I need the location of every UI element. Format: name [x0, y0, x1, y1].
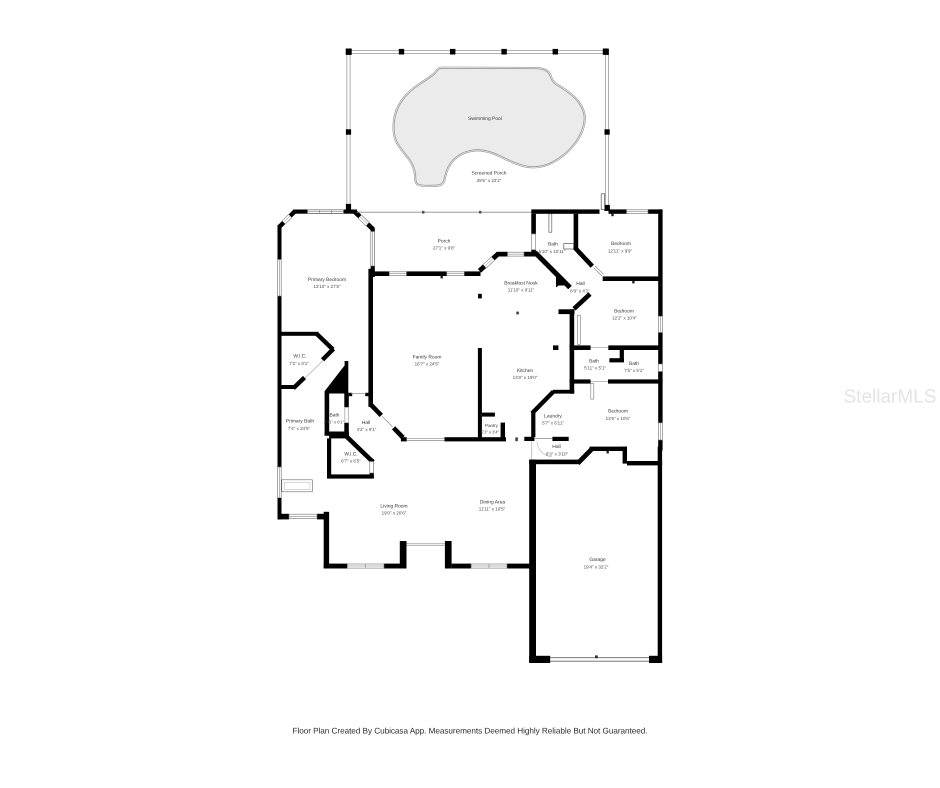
svg-text:Living Room: Living Room: [380, 504, 407, 510]
svg-text:12'11" x 9'9": 12'11" x 9'9": [608, 249, 633, 254]
svg-text:4'2" x 9'1": 4'2" x 9'1": [357, 427, 377, 432]
svg-text:Bedroom: Bedroom: [611, 241, 631, 247]
svg-text:Laundry: Laundry: [544, 414, 562, 420]
svg-text:Dining Area: Dining Area: [480, 500, 506, 506]
svg-text:Bath: Bath: [329, 413, 339, 419]
svg-text:Porch: Porch: [438, 239, 451, 245]
svg-text:Pantry: Pantry: [485, 423, 498, 428]
svg-text:Primary Bath: Primary Bath: [286, 419, 315, 425]
svg-text:12'2" x 10'4": 12'2" x 10'4": [612, 316, 637, 321]
svg-text:Screened Porch: Screened Porch: [471, 171, 506, 177]
svg-text:Garage: Garage: [589, 557, 606, 563]
svg-text:13'6" x 10'6": 13'6" x 10'6": [606, 416, 631, 421]
svg-text:Bedroom: Bedroom: [614, 309, 634, 315]
svg-text:Swimming Pool: Swimming Pool: [468, 116, 502, 122]
svg-text:8'3" x 3'10": 8'3" x 3'10": [546, 452, 569, 457]
svg-text:Bath: Bath: [629, 361, 639, 367]
svg-text:Bedroom: Bedroom: [608, 409, 628, 415]
svg-text:Kitchen: Kitchen: [517, 368, 534, 374]
svg-text:16'7" x 24'5": 16'7" x 24'5": [415, 362, 440, 367]
svg-text:W.I.C.: W.I.C.: [293, 354, 306, 360]
svg-text:5'11" x 5'1": 5'11" x 5'1": [584, 366, 606, 371]
svg-text:Breakfast Nook: Breakfast Nook: [504, 281, 538, 287]
svg-text:19'4" x 32'2": 19'4" x 32'2": [584, 565, 609, 570]
svg-text:39'6" x 23'2": 39'6" x 23'2": [477, 178, 502, 183]
svg-text:Hall: Hall: [362, 420, 370, 426]
svg-text:6'7" x 6'5": 6'7" x 6'5": [341, 459, 361, 464]
svg-text:13'8" x 19'0": 13'8" x 19'0": [513, 375, 538, 380]
svg-text:5'2" x 3'4": 5'2" x 3'4": [481, 430, 499, 435]
svg-text:7'2" x 8'1": 7'2" x 8'1": [289, 361, 309, 366]
svg-text:Family Room: Family Room: [413, 355, 442, 361]
svg-text:Hall: Hall: [552, 444, 560, 450]
svg-text:2'11" x 6'1": 2'11" x 6'1": [324, 420, 345, 425]
svg-text:Floor Plan Created By Cubicasa: Floor Plan Created By Cubicasa App. Meas…: [293, 727, 648, 736]
svg-text:5'10" x 10'11": 5'10" x 10'11": [539, 249, 566, 254]
svg-text:Hall: Hall: [576, 281, 584, 287]
svg-text:19'0" x 20'6": 19'0" x 20'6": [382, 511, 407, 516]
svg-text:11'10" x 9'11": 11'10" x 9'11": [508, 288, 535, 293]
svg-text:W.I.C.: W.I.C.: [344, 452, 357, 458]
svg-text:7'5" x 5'1": 7'5" x 5'1": [624, 368, 644, 373]
svg-text:11'11" x 10'5": 11'11" x 10'5": [479, 507, 506, 512]
svg-text:Primary Bedroom: Primary Bedroom: [308, 277, 346, 283]
svg-text:7'4" x 24'5": 7'4" x 24'5": [288, 426, 311, 431]
svg-text:Bath: Bath: [589, 359, 599, 365]
svg-text:27'1" x 9'8": 27'1" x 9'8": [433, 246, 456, 251]
svg-text:8'9" x 4'1": 8'9" x 4'1": [570, 289, 590, 294]
svg-text:Bath: Bath: [548, 242, 558, 248]
svg-text:StellarMLS: StellarMLS: [844, 387, 937, 408]
svg-text:5'7" x 6'11": 5'7" x 6'11": [542, 421, 564, 426]
svg-text:13'10" x 27'8": 13'10" x 27'8": [313, 284, 341, 289]
